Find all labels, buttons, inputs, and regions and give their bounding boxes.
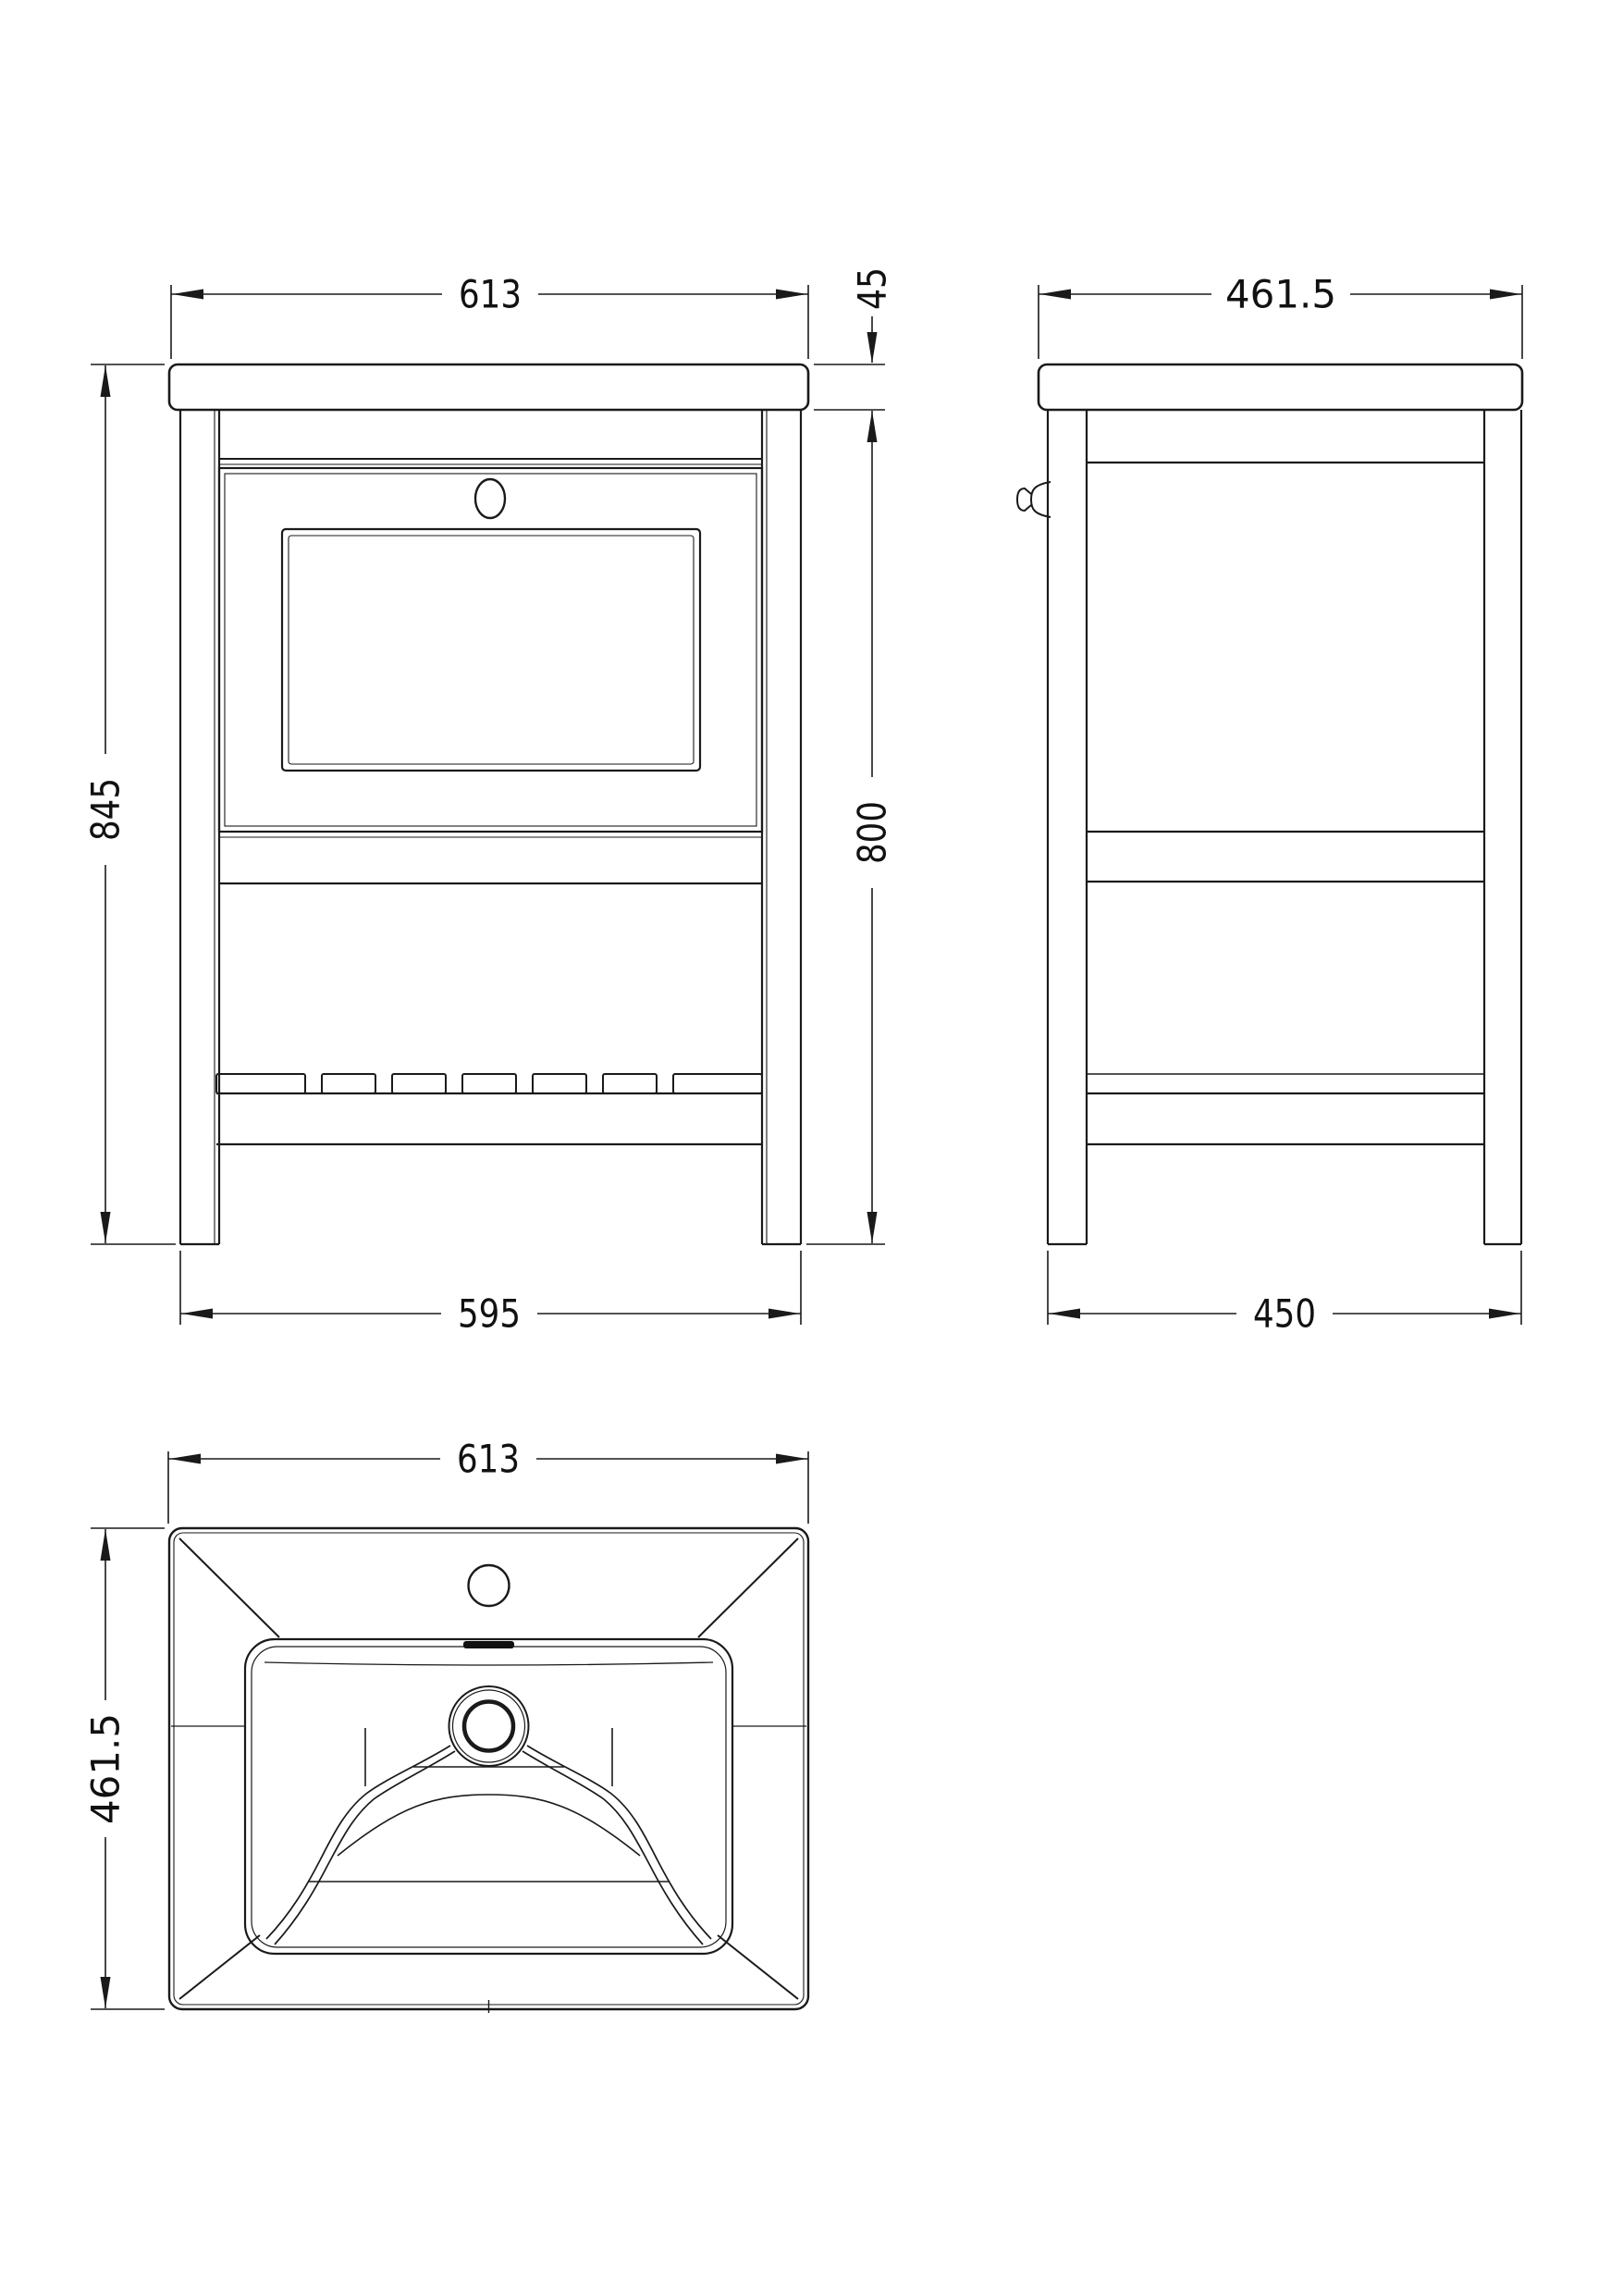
arrowhead-icon	[768, 1309, 800, 1319]
side-dimensions: 461.5 450	[1039, 272, 1522, 1337]
basin-outer-edge	[169, 1528, 808, 2009]
arrowhead-icon	[181, 1309, 213, 1319]
arrowhead-icon	[1490, 290, 1521, 300]
dim-worktop-thickness: 45	[814, 267, 895, 410]
technical-drawing-sheet: 613 45 845 800	[0, 0, 1623, 2296]
front-shelf-rails	[216, 1093, 762, 1144]
arrowhead-icon	[1039, 290, 1071, 300]
shelf-slat	[462, 1074, 516, 1093]
side-shelf-rails	[1087, 1093, 1484, 1144]
basin-rim-inner-line	[252, 1647, 726, 1947]
dim-basin-width: 613	[168, 1437, 808, 1524]
basin-plan-view	[169, 1528, 808, 2013]
arrowhead-icon	[867, 1212, 878, 1243]
shelf-slat	[392, 1074, 446, 1093]
vanity-dimension-drawing: 613 45 845 800	[0, 0, 1623, 2296]
shelf-slat	[322, 1074, 375, 1093]
contour-outer	[266, 1746, 450, 1939]
dim-label-front-width: 613	[459, 272, 522, 317]
arrowhead-icon	[172, 290, 203, 300]
overflow-slot-icon	[463, 1641, 514, 1648]
dim-cabinet-height: 800	[806, 411, 895, 1244]
dim-label-side-base-depth: 450	[1253, 1291, 1316, 1337]
front-drawer-outer-inner-line	[225, 474, 756, 826]
dim-label-base-width: 595	[458, 1291, 521, 1337]
bowl-side-wall-lines	[365, 1728, 612, 1786]
side-door-knob-icon	[1017, 482, 1051, 517]
bowl-front-arch	[338, 1795, 640, 1856]
arrowhead-icon	[1489, 1309, 1520, 1319]
arrowhead-icon	[867, 411, 878, 442]
shelf-slat	[673, 1074, 762, 1093]
shelf-slat	[533, 1074, 586, 1093]
shelf-slat	[603, 1074, 657, 1093]
front-legs-inner-line	[215, 410, 767, 1244]
extension-lines	[814, 364, 885, 410]
arrowhead-icon	[101, 1529, 111, 1561]
arrowhead-icon	[867, 332, 878, 364]
waste-drain-icon	[449, 1686, 529, 1766]
dim-base-width: 595	[180, 1251, 801, 1337]
dim-label-worktop-thickness: 45	[850, 267, 895, 310]
drain-plug	[464, 1702, 513, 1751]
front-legs	[180, 410, 801, 1244]
front-drawer-outer	[219, 468, 762, 832]
front-drawer-recessed-panel	[282, 529, 700, 771]
side-mid-rails	[1087, 832, 1484, 882]
arrowhead-icon	[776, 1454, 807, 1464]
bowl-left-contour	[266, 1746, 455, 1944]
basin-dimensions: 613 461.5	[83, 1437, 808, 2009]
arrowhead-icon	[1049, 1309, 1080, 1319]
front-dimensions: 613 45 845 800	[83, 267, 895, 1337]
front-drawer-recessed-panel-inner	[289, 536, 694, 764]
dim-side-depth: 461.5	[1039, 272, 1522, 359]
shelf-slat	[216, 1074, 305, 1093]
side-worktop	[1039, 364, 1522, 410]
bowl-right-contour	[523, 1746, 711, 1944]
side-elevation-view	[1017, 364, 1522, 1244]
basin-outer-inner-line	[174, 1533, 804, 2005]
dim-overall-height: 845	[83, 364, 176, 1244]
basin-corner-chamfers	[179, 1538, 798, 1999]
side-legs	[1048, 410, 1521, 1244]
basin-back-wall-line	[264, 1662, 713, 1665]
arrowhead-icon	[776, 290, 807, 300]
dim-label-basin-depth: 461.5	[83, 1713, 129, 1824]
dim-label-side-depth: 461.5	[1225, 272, 1336, 317]
contour-outer	[527, 1746, 711, 1939]
front-worktop	[169, 364, 808, 410]
drain-outer-ring	[449, 1686, 529, 1766]
front-shelf-slats	[216, 1074, 762, 1093]
front-drawer-knob-icon	[475, 479, 505, 518]
dim-basin-depth: 461.5	[83, 1528, 165, 2009]
arrowhead-icon	[101, 365, 111, 397]
dim-label-cabinet-height: 800	[850, 801, 895, 864]
dim-label-overall-height: 845	[83, 778, 129, 841]
tap-hole-icon	[469, 1565, 510, 1606]
dim-front-width: 613	[171, 272, 808, 359]
dim-label-basin-width: 613	[457, 1437, 520, 1482]
front-elevation-view	[169, 364, 808, 1244]
arrowhead-icon	[169, 1454, 201, 1464]
arrowhead-icon	[101, 1977, 111, 2008]
arrowhead-icon	[101, 1212, 111, 1243]
dim-side-base-depth: 450	[1048, 1251, 1521, 1337]
